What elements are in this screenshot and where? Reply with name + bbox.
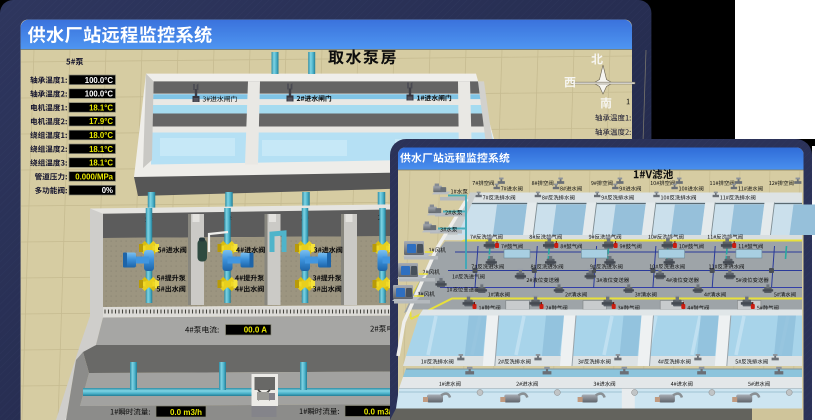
svg-text:17.9°C: 17.9°C [89,117,113,126]
svg-text:0%: 0% [102,186,113,195]
svg-text:00.0 A: 00.0 A [244,326,267,335]
svg-text:0.0 m3/: 0.0 m3/ [364,407,392,416]
svg-text:18.0°C: 18.0°C [89,131,113,140]
svg-text:100.0°C: 100.0°C [85,76,114,85]
svg-text:18.1°C: 18.1°C [89,159,113,168]
svg-text:0.0 m3/h: 0.0 m3/h [170,408,202,417]
svg-text:18.1°C: 18.1°C [89,145,113,154]
svg-text:18.1°C: 18.1°C [89,103,113,112]
svg-text:0.000/MPa: 0.000/MPa [75,172,113,181]
svg-text:100.0°C: 100.0°C [85,90,114,99]
